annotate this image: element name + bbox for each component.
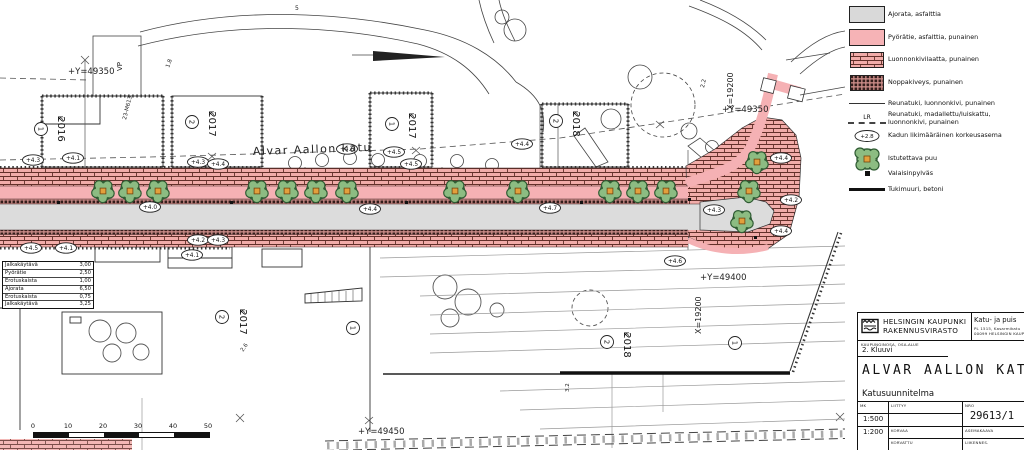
svg-text:1: 1 bbox=[37, 127, 45, 131]
svg-text:+4.4: +4.4 bbox=[515, 142, 529, 148]
elevation-label: +4.3 bbox=[188, 157, 209, 167]
scale-1: 1:500 bbox=[863, 415, 883, 423]
block-label: 12017K bbox=[386, 113, 418, 139]
tree-swatch bbox=[853, 146, 881, 172]
asphalt-swatch bbox=[849, 6, 885, 23]
contour-lines bbox=[380, 246, 845, 429]
svg-text:1: 1 bbox=[349, 326, 357, 330]
plan-text-label: +Y=49400 bbox=[700, 273, 746, 283]
block-label: 1 bbox=[729, 337, 742, 350]
street-plan-sheet: +4.3+4.1+4.3+4.4+4.6+4.5+4.5+4.4+4.4+4.2… bbox=[0, 0, 1024, 450]
svg-text:1: 1 bbox=[388, 122, 396, 126]
stone-slab-swatch bbox=[850, 52, 884, 68]
svg-text:+4.4: +4.4 bbox=[774, 156, 788, 162]
plan-text-label: 3.2 bbox=[565, 383, 571, 392]
district-value: 2. Kluuvi bbox=[862, 346, 892, 354]
helsinki-logo bbox=[861, 318, 880, 339]
legend-label: Reunatuki, madallettu/luiskattu, luonnon… bbox=[888, 111, 1020, 126]
width-table-row: Erotuskaista1,00 bbox=[3, 278, 93, 286]
elevation-label: +4.2 bbox=[188, 235, 209, 245]
scale-bar-tick: 30 bbox=[134, 422, 142, 430]
legend-item-korkeusasema: +2.8 Kadun likimääräinen korkeusasema bbox=[846, 129, 1020, 143]
scale-bar-tick: 40 bbox=[169, 422, 177, 430]
plan-text-label: X=19200 bbox=[726, 72, 735, 110]
svg-text:+4.2: +4.2 bbox=[784, 198, 798, 204]
legend-label: Luonnonkivilaatta, punainen bbox=[888, 56, 1020, 64]
legend-label: Istutettava puu bbox=[888, 155, 1020, 163]
asemakaava-label: ASEMAKAAVA bbox=[965, 428, 993, 433]
svg-text:+4.3: +4.3 bbox=[26, 158, 40, 164]
legend-label: Reunatuki, luonnonkivi, punainen bbox=[888, 100, 1020, 108]
svg-text:2: 2 bbox=[218, 315, 226, 319]
elevation-label: +4.4 bbox=[771, 153, 792, 163]
elevation-label: +4.4 bbox=[208, 159, 229, 169]
legend-label: Kadun likimääräinen korkeusasema bbox=[888, 132, 1020, 140]
korvattu-label: KORVATTU bbox=[891, 440, 913, 445]
legend-label: Noppakiveys, punainen bbox=[888, 79, 1020, 87]
drawing-title: ALVAR AALLON KATU bbox=[862, 363, 1024, 378]
elevation-label: +4.0 bbox=[140, 202, 161, 212]
plan-text-label: 2.2 bbox=[700, 79, 708, 89]
bike-path-swatch bbox=[849, 29, 885, 46]
scale-bar: 01020304050 bbox=[33, 422, 215, 442]
svg-text:K: K bbox=[622, 332, 630, 337]
width-table-row: Pyörätie2,50 bbox=[3, 270, 93, 278]
svg-text:+4.1: +4.1 bbox=[59, 246, 73, 252]
svg-text:+4.4: +4.4 bbox=[363, 207, 377, 213]
svg-text:+4.3: +4.3 bbox=[191, 160, 205, 166]
elevation-symbol-swatch: +2.8 bbox=[852, 129, 882, 143]
width-table-row: Jalkakäytävä3,00 bbox=[3, 262, 93, 270]
legend-label: Pyörätie, asfalttia, punainen bbox=[888, 34, 1020, 42]
elevation-label: +4.6 bbox=[665, 256, 686, 266]
svg-text:2: 2 bbox=[603, 340, 611, 344]
department-name: Katu- ja puis bbox=[974, 316, 1016, 324]
svg-text:+4.4: +4.4 bbox=[211, 162, 225, 168]
elevation-label: +4.7 bbox=[540, 203, 561, 213]
scale-bar-segments bbox=[33, 432, 210, 438]
svg-text:+4.5: +4.5 bbox=[387, 150, 401, 156]
svg-text:K: K bbox=[207, 111, 215, 116]
block-label: 22017K bbox=[216, 309, 249, 335]
svg-text:+4.1: +4.1 bbox=[185, 253, 199, 259]
plan-text-label: 2.6 bbox=[240, 342, 250, 353]
street-surfaces bbox=[0, 53, 845, 251]
legend-item-ajorata: Ajorata, asfalttia bbox=[846, 6, 1020, 23]
width-table-row: Erotuskaista0,75 bbox=[3, 294, 93, 302]
legend-item-pyoratie: Pyörätie, asfalttia, punainen bbox=[846, 29, 1020, 46]
section-lines bbox=[85, 60, 688, 450]
wall-swatch bbox=[849, 188, 885, 191]
elevation-label: +4.1 bbox=[63, 153, 84, 163]
svg-text:+4.6: +4.6 bbox=[668, 259, 682, 265]
legend-label: Ajorata, asfalttia bbox=[888, 11, 1020, 19]
scale-bar-tick: 0 bbox=[31, 422, 35, 430]
svg-text:+4.0: +4.0 bbox=[143, 205, 157, 211]
elevation-label: +4.1 bbox=[182, 250, 203, 260]
svg-text:K: K bbox=[571, 111, 579, 116]
svg-text:K: K bbox=[238, 309, 246, 314]
plan-text-label: Alvar Aallon katu bbox=[253, 141, 373, 158]
legend-label: Valaisinpylväs bbox=[888, 170, 1020, 178]
elevation-label: +4.3 bbox=[208, 235, 229, 245]
block-label: 22018K bbox=[550, 111, 582, 137]
svg-text:1: 1 bbox=[731, 341, 739, 345]
plan-text-label: +Y=49450 bbox=[358, 427, 404, 437]
plan-text-label: X=19200 bbox=[694, 296, 703, 334]
curb-line-swatch bbox=[849, 103, 885, 104]
elevation-label: +4.5 bbox=[401, 159, 422, 169]
agency-name-line1: HELSINGIN KAUPUNKI bbox=[883, 317, 966, 326]
svg-text:K: K bbox=[56, 116, 64, 121]
agency-name-line2: RAKENNUSVIRASTO bbox=[883, 326, 958, 335]
svg-text:+4.2: +4.2 bbox=[191, 238, 205, 244]
liittyy-label: LIITTYY bbox=[891, 403, 906, 408]
block-label: 22017K bbox=[186, 111, 218, 137]
legend-item-tukimuuri: Tukimuuri, betoni bbox=[846, 186, 1020, 194]
width-table-row: Jalkakäytävä3,25 bbox=[3, 301, 93, 308]
elevation-label: +4.4 bbox=[512, 139, 533, 149]
plan-text-label: 5 bbox=[295, 5, 299, 12]
width-table-row: Ajorata6,50 bbox=[3, 286, 93, 294]
svg-text:+4.4: +4.4 bbox=[774, 229, 788, 235]
title-block: HELSINGIN KAUPUNKI RAKENNUSVIRASTO Katu-… bbox=[857, 312, 1024, 450]
svg-text:2: 2 bbox=[188, 120, 196, 124]
block-label: 1 bbox=[347, 322, 360, 335]
elevation-label: +4.3 bbox=[23, 155, 44, 165]
plan-text-label: +Y=49350 bbox=[68, 67, 114, 77]
legend-item-puu: Istutettava puu bbox=[846, 146, 1020, 172]
svg-text:2: 2 bbox=[552, 119, 560, 123]
street-widths-table: Jalkakäytävä3,00Pyörätie2,50Erotuskaista… bbox=[2, 261, 94, 309]
scale-bar-tick: 20 bbox=[99, 422, 107, 430]
svg-text:K: K bbox=[407, 113, 415, 118]
legend-label: Tukimuuri, betoni bbox=[888, 186, 1020, 194]
elevation-label: +4.3 bbox=[704, 205, 725, 215]
elevation-label: +4.2 bbox=[781, 195, 802, 205]
svg-text:+2.8: +2.8 bbox=[860, 134, 874, 140]
legend-item-reunatuki: Reunatuki, luonnonkivi, punainen bbox=[846, 100, 1020, 108]
light-pole-swatch bbox=[865, 171, 870, 176]
korvaa-label: KORVAA bbox=[891, 428, 908, 433]
legend-item-valaisinpylvas: Valaisinpylväs bbox=[846, 170, 1020, 178]
svg-text:+4.5: +4.5 bbox=[404, 162, 418, 168]
elevation-label: +4.1 bbox=[56, 243, 77, 253]
block-label: 12016K bbox=[35, 116, 67, 142]
drawing-type: Katusuunnitelma bbox=[862, 389, 934, 399]
svg-text:+4.3: +4.3 bbox=[211, 238, 225, 244]
lowered-curb-swatch: LR bbox=[848, 114, 886, 124]
drawing-number: 29613/1 bbox=[962, 410, 1022, 422]
cobble-swatch bbox=[850, 75, 884, 91]
elevation-label: +4.4 bbox=[771, 226, 792, 236]
elevation-label: +4.5 bbox=[21, 243, 42, 253]
liikenne-label: LIIKENNES. bbox=[965, 440, 988, 445]
block-label: 22018K bbox=[601, 332, 633, 358]
scale-2: 1:200 bbox=[863, 428, 883, 436]
svg-text:+4.7: +4.7 bbox=[543, 206, 557, 212]
department-address2: 00099 HELSINGIN KAUP bbox=[974, 331, 1024, 336]
plan-text-label: 23-M613 bbox=[122, 95, 134, 120]
scale-label: MK bbox=[860, 403, 866, 408]
svg-text:+4.1: +4.1 bbox=[66, 156, 80, 162]
scale-bar-tick: 10 bbox=[64, 422, 72, 430]
svg-text:+4.5: +4.5 bbox=[24, 246, 38, 252]
nro-label: NRO bbox=[965, 403, 974, 408]
plan-text-label: 1.8 bbox=[165, 58, 174, 69]
legend-item-reunatuki-madallettu: LR Reunatuki, madallettu/luiskattu, luon… bbox=[846, 111, 1020, 126]
svg-text:+4.3: +4.3 bbox=[707, 208, 721, 214]
elevation-label: +4.5 bbox=[384, 147, 405, 157]
elevation-label: +4.4 bbox=[360, 204, 381, 214]
scale-bar-tick: 50 bbox=[204, 422, 212, 430]
plan-text-label: VP bbox=[116, 62, 124, 71]
plan-drawing: +4.3+4.1+4.3+4.4+4.6+4.5+4.5+4.4+4.4+4.2… bbox=[0, 0, 845, 450]
legend-item-luonnonkivilaatta: Luonnonkivilaatta, punainen bbox=[846, 52, 1020, 68]
legend-item-noppakiveys: Noppakiveys, punainen bbox=[846, 75, 1020, 91]
